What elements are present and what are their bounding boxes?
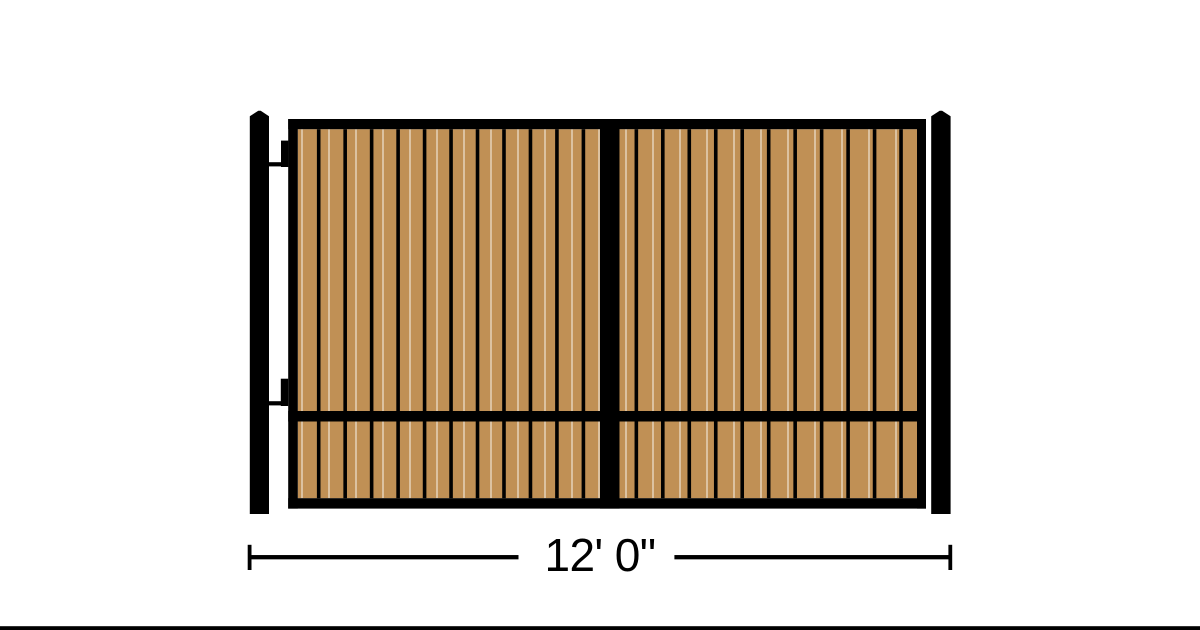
svg-text:12' 0": 12' 0" <box>544 529 655 581</box>
